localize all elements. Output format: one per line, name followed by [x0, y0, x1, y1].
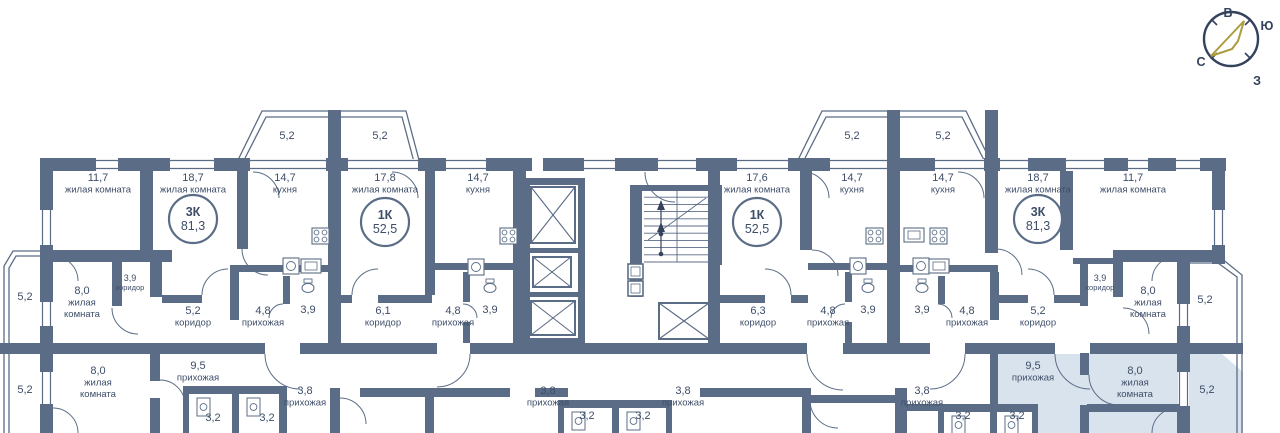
wall-segment — [328, 110, 341, 343]
room-area-label: 5,2 — [844, 130, 859, 142]
room-name-label: коридор — [1020, 318, 1056, 329]
room-area-label: 14,7 — [932, 172, 953, 184]
wall-segment — [523, 178, 530, 345]
room-area-label: 8,0 — [1127, 365, 1142, 377]
wall-segment — [788, 158, 830, 171]
room-area-label: 4,8 — [445, 305, 460, 317]
room-area-label: 11,7 — [1123, 172, 1144, 184]
stair-dot — [659, 232, 664, 237]
room-area-label: 14,7 — [841, 172, 862, 184]
room-area-label: 3,2 — [955, 410, 970, 422]
room-area-label: 3,9 — [1094, 273, 1107, 283]
room-area-label: 3,2 — [259, 412, 274, 424]
wall-segment — [802, 388, 811, 433]
wall-segment — [998, 295, 1028, 303]
room-area-label: 18,7 — [1027, 172, 1048, 184]
wall-segment — [791, 295, 808, 303]
room-area-label: 17,6 — [746, 172, 767, 184]
wall-segment — [434, 388, 510, 397]
counter-icon — [301, 259, 321, 273]
shaft-icon — [628, 281, 643, 296]
wall-segment — [720, 295, 765, 303]
room-area-label: 5,2 — [17, 291, 32, 303]
room-area-label: 3,2 — [635, 410, 650, 422]
room-area-label: 9,5 — [1025, 360, 1040, 372]
room-name-label: жилая — [84, 378, 112, 389]
room-area-label: 3,8 — [914, 385, 929, 397]
wall-segment — [1080, 353, 1089, 375]
room-area-label: 3,2 — [579, 410, 594, 422]
wall-segment — [470, 343, 807, 354]
wall-segment — [214, 158, 250, 171]
room-name-label: коридор — [1086, 283, 1115, 292]
wall-segment — [230, 272, 239, 320]
room-area-label: 5,2 — [185, 305, 200, 317]
wall-segment — [965, 343, 1055, 354]
room-name-label: кухня — [273, 185, 297, 196]
wall-segment — [523, 178, 585, 185]
apartment-area-label: 81,3 — [1026, 219, 1050, 233]
room-area-label: 6,3 — [750, 305, 765, 317]
apartment-area-label: 81,3 — [181, 219, 205, 233]
room-area-label: 3,8 — [540, 385, 555, 397]
wall-segment — [486, 158, 532, 171]
shaft-icon — [628, 264, 643, 279]
room-name-label: жилая комната — [724, 185, 791, 196]
wall-segment — [118, 158, 170, 171]
wall-segment — [615, 158, 658, 171]
stove-icon — [312, 228, 329, 244]
wall-segment — [40, 158, 53, 210]
room-area-label: 5,2 — [1199, 384, 1214, 396]
room-area-label: 4,8 — [820, 305, 835, 317]
wall-segment — [300, 343, 437, 354]
wall-segment — [425, 171, 435, 295]
room-name-label: жилая комната — [352, 185, 419, 196]
wall-segment — [1113, 262, 1123, 297]
apartment-type-label: 3К — [186, 205, 201, 219]
room-area-label: 3,8 — [675, 385, 690, 397]
toilet-tank — [304, 279, 312, 283]
toilet-tank — [486, 279, 494, 283]
room-area-label: 17,8 — [374, 172, 395, 184]
room-area-label: 5,2 — [1197, 294, 1212, 306]
room-name-label: жилая комната — [160, 185, 227, 196]
room-name-label: кухня — [466, 185, 490, 196]
compass-letter: З — [1253, 74, 1261, 88]
apartment-type-label: 1К — [750, 208, 765, 222]
room-area-label: 11,7 — [88, 172, 109, 184]
wall-segment — [523, 248, 585, 253]
compass-letter: Ю — [1261, 19, 1274, 33]
wall-segment — [232, 394, 239, 433]
room-name-label: жилая — [1121, 378, 1149, 389]
room-area-label: 3,9 — [860, 304, 875, 316]
apartment-area-label: 52,5 — [745, 222, 769, 236]
room-name-label: коридор — [365, 318, 401, 329]
wall-segment — [425, 388, 434, 433]
wall-segment — [985, 110, 998, 253]
room-area-label: 8,0 — [74, 285, 89, 297]
room-name-label: прихожая — [432, 318, 474, 329]
room-area-label: 5,2 — [372, 130, 387, 142]
room-name-label: прихожая — [527, 398, 569, 409]
room-name-label: жилая — [1134, 298, 1162, 309]
wall-segment — [938, 412, 944, 433]
apartment-type-label: 1К — [378, 208, 393, 222]
toilet-tank — [918, 279, 926, 283]
room-name-label: жилая — [68, 298, 96, 309]
wall-segment — [845, 272, 852, 302]
washer-icon — [913, 258, 929, 274]
wall-segment — [1028, 158, 1066, 171]
toilet-icon — [916, 284, 928, 293]
room-name-label: прихожая — [177, 373, 219, 384]
wall-segment — [330, 388, 340, 433]
room-area-label: 8,0 — [90, 365, 105, 377]
wall-segment — [1054, 295, 1080, 303]
room-name-label: прихожая — [807, 318, 849, 329]
wall-segment — [1090, 343, 1243, 354]
wall-segment — [183, 386, 285, 394]
wall-segment — [463, 272, 470, 302]
wall-segment — [843, 343, 930, 354]
floor-plan-page: 5,25,25,25,211,7жилая комната18,7жилая к… — [0, 0, 1280, 433]
room-area-label: 3,9 — [124, 273, 137, 283]
room-name-label: комната — [1130, 309, 1167, 320]
wall-segment — [887, 110, 900, 343]
wall-segment — [578, 178, 585, 345]
wall-segment — [712, 185, 722, 265]
wall-segment — [1148, 158, 1176, 171]
apartment-area-label: 52,5 — [373, 222, 397, 236]
toilet-icon — [484, 284, 496, 293]
wall-segment — [558, 408, 564, 433]
wall-segment — [150, 398, 160, 433]
room-area-label: 18,7 — [182, 172, 203, 184]
room-name-label: прихожая — [946, 318, 988, 329]
wall-segment — [0, 343, 265, 354]
room-area-label: 6,1 — [375, 305, 390, 317]
wall-segment — [1212, 158, 1225, 210]
room-name-label: жилая комната — [1100, 185, 1167, 196]
wall-segment — [162, 295, 202, 303]
room-area-label: 9,5 — [190, 360, 205, 372]
wall-segment — [523, 338, 585, 345]
room-name-label: кухня — [931, 185, 955, 196]
room-name-label: прихожая — [242, 318, 284, 329]
room-name-label: прихожая — [284, 398, 326, 409]
wall-segment — [666, 408, 672, 433]
wall-segment — [895, 388, 907, 433]
room-name-label: комната — [64, 309, 101, 320]
floor-plan-drawing: 5,25,25,25,211,7жилая комната18,7жилая к… — [0, 0, 1280, 433]
wall-segment — [990, 272, 999, 320]
room-name-label: прихожая — [1012, 373, 1054, 384]
wall-segment — [700, 388, 803, 397]
wall-segment — [150, 262, 162, 297]
room-area-label: 3,2 — [205, 412, 220, 424]
room-area-label: 4,8 — [255, 305, 270, 317]
wall-segment — [283, 276, 290, 304]
wall-segment — [612, 408, 619, 433]
room-name-label: коридор — [740, 318, 776, 329]
room-name-label: комната — [80, 389, 117, 400]
wall-segment — [183, 394, 189, 433]
room-area-label: 8,0 — [1140, 285, 1155, 297]
room-area-label: 4,8 — [959, 305, 974, 317]
wall-segment — [378, 295, 432, 303]
sink-icon — [247, 398, 260, 416]
wall-segment — [696, 158, 737, 171]
counter-icon — [929, 259, 949, 273]
wall-segment — [40, 250, 172, 262]
room-name-label: комната — [1117, 389, 1154, 400]
compass-letter: В — [1223, 6, 1232, 20]
compass-letter: С — [1196, 55, 1205, 69]
wall-segment — [360, 388, 425, 397]
wall-segment — [237, 171, 248, 249]
wall-segment — [140, 171, 153, 250]
stove-icon — [500, 228, 517, 244]
room-area-label: 3,2 — [1009, 410, 1024, 422]
apartment-type-label: 3К — [1031, 205, 1046, 219]
room-area-label: 5,2 — [935, 130, 950, 142]
room-area-label: 3,9 — [914, 304, 929, 316]
washer-icon — [468, 259, 484, 275]
toilet-icon — [862, 284, 874, 293]
wall-segment — [1032, 412, 1038, 433]
wall-segment — [340, 295, 352, 303]
wall-segment — [800, 171, 812, 250]
room-name-label: жилая комната — [65, 185, 132, 196]
room-area-label: 14,7 — [274, 172, 295, 184]
room-name-label: прихожая — [662, 398, 704, 409]
room-area-label: 5,2 — [17, 384, 32, 396]
room-area-label: 3,8 — [297, 385, 312, 397]
wall-segment — [1060, 171, 1073, 250]
wall-segment — [938, 276, 945, 304]
wall-segment — [1104, 158, 1128, 171]
wall-segment — [558, 400, 672, 408]
wall-segment — [990, 412, 997, 433]
room-name-label: жилая комната — [1005, 185, 1072, 196]
room-area-label: 14,7 — [467, 172, 488, 184]
wall-segment — [1113, 250, 1225, 262]
wall-segment — [1177, 262, 1190, 304]
room-area-label: 3,9 — [300, 304, 315, 316]
room-area-label: 5,2 — [1030, 305, 1045, 317]
stove-icon — [866, 228, 883, 244]
room-name-label: коридор — [116, 283, 145, 292]
stove-icon — [930, 228, 947, 244]
counter-icon — [904, 228, 924, 242]
room-area-label: 3,9 — [482, 304, 497, 316]
wall-segment — [543, 158, 584, 171]
wall-segment — [418, 158, 446, 171]
room-name-label: коридор — [175, 318, 211, 329]
room-name-label: кухня — [840, 185, 864, 196]
wall-segment — [523, 292, 585, 297]
toilet-tank — [864, 279, 872, 283]
wall-segment — [40, 404, 53, 433]
toilet-icon — [302, 284, 314, 293]
washer-icon — [850, 258, 866, 274]
room-area-label: 5,2 — [279, 130, 294, 142]
wall-segment — [150, 353, 160, 381]
washer-icon — [283, 258, 299, 274]
wall-segment — [810, 395, 895, 403]
room-name-label: прихожая — [901, 398, 943, 409]
stair-dot — [659, 252, 664, 257]
